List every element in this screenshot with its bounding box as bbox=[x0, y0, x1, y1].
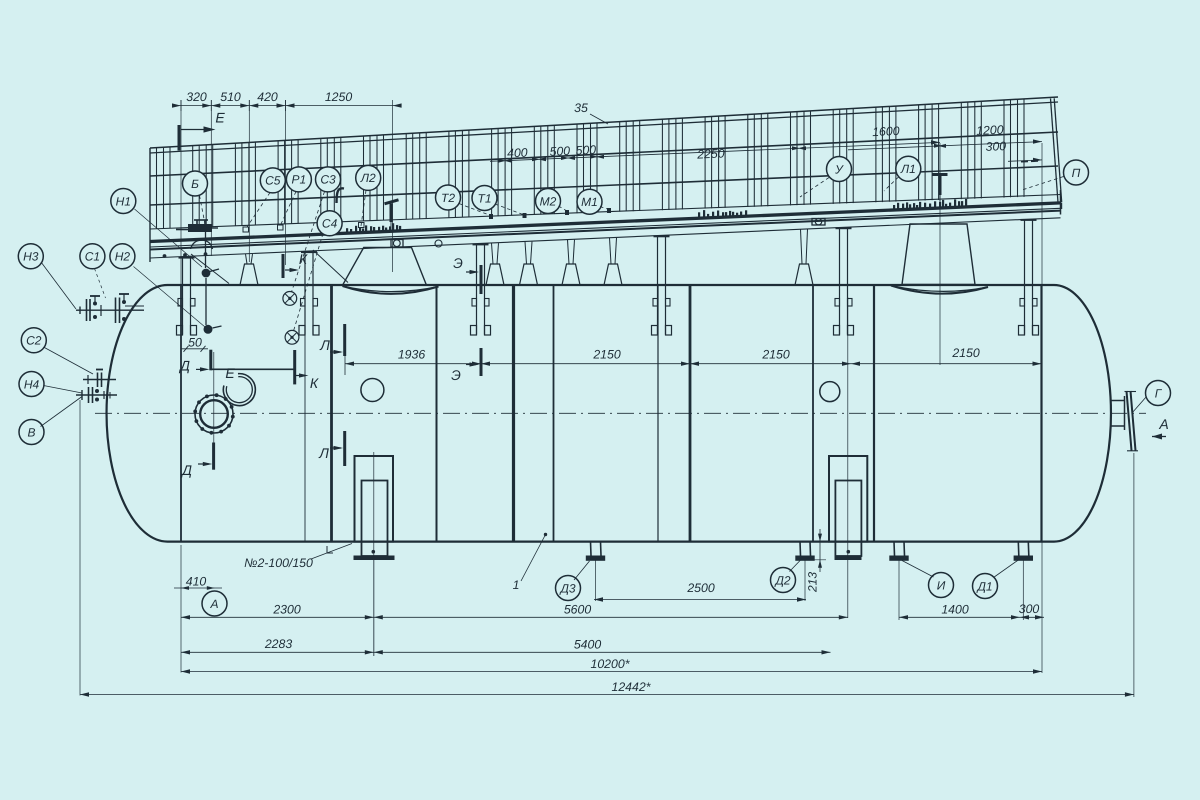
svg-text:50: 50 bbox=[188, 336, 202, 350]
svg-text:1400: 1400 bbox=[941, 603, 969, 617]
svg-text:К: К bbox=[299, 251, 308, 267]
svg-text:С4: С4 bbox=[322, 217, 338, 231]
svg-text:Д3: Д3 bbox=[558, 581, 575, 595]
svg-text:2150: 2150 bbox=[592, 348, 621, 362]
svg-text:Л: Л bbox=[319, 337, 330, 353]
svg-text:И: И bbox=[937, 578, 946, 592]
svg-text:12442*: 12442* bbox=[612, 680, 652, 694]
svg-text:С1: С1 bbox=[85, 250, 100, 264]
svg-text:Т1: Т1 bbox=[477, 191, 491, 205]
svg-text:Э: Э bbox=[453, 255, 463, 271]
svg-text:У: У bbox=[834, 162, 844, 176]
svg-text:Т2: Т2 bbox=[441, 191, 455, 205]
svg-text:420: 420 bbox=[257, 90, 278, 104]
svg-text:№2-100/150: №2-100/150 bbox=[244, 556, 313, 570]
svg-text:К: К bbox=[310, 375, 319, 391]
svg-text:Е: Е bbox=[215, 110, 225, 126]
svg-text:Л: Л bbox=[318, 445, 329, 461]
svg-text:1250: 1250 bbox=[325, 90, 353, 104]
svg-text:10200*: 10200* bbox=[591, 657, 631, 671]
svg-text:С3: С3 bbox=[320, 173, 336, 187]
svg-text:Д2: Д2 bbox=[773, 573, 790, 587]
svg-text:Р1: Р1 bbox=[292, 173, 307, 187]
svg-text:М2: М2 bbox=[540, 194, 557, 208]
svg-text:2150: 2150 bbox=[761, 348, 790, 362]
svg-text:Д: Д bbox=[178, 358, 190, 374]
svg-text:2250: 2250 bbox=[696, 146, 725, 161]
svg-text:А: А bbox=[209, 597, 218, 611]
svg-text:2300: 2300 bbox=[272, 603, 301, 617]
svg-text:Н3: Н3 bbox=[23, 250, 39, 264]
svg-text:Л1: Л1 bbox=[900, 162, 916, 176]
svg-text:320: 320 bbox=[186, 90, 207, 104]
svg-text:5600: 5600 bbox=[564, 603, 592, 617]
svg-text:500: 500 bbox=[549, 144, 570, 159]
svg-text:300: 300 bbox=[985, 139, 1006, 154]
svg-text:2283: 2283 bbox=[264, 637, 293, 651]
svg-text:А: А bbox=[1158, 416, 1168, 432]
svg-text:400: 400 bbox=[507, 146, 528, 161]
svg-text:Н4: Н4 bbox=[24, 377, 40, 391]
svg-text:35: 35 bbox=[574, 101, 588, 115]
svg-text:2500: 2500 bbox=[686, 581, 715, 595]
svg-text:В: В bbox=[27, 425, 35, 439]
svg-text:Л2: Л2 bbox=[360, 171, 376, 185]
svg-text:1936: 1936 bbox=[398, 348, 426, 362]
svg-text:Э: Э bbox=[451, 367, 461, 383]
svg-text:Н2: Н2 bbox=[115, 250, 131, 264]
svg-text:5400: 5400 bbox=[574, 638, 602, 652]
svg-text:300: 300 bbox=[1019, 602, 1040, 616]
svg-text:213: 213 bbox=[806, 572, 820, 593]
svg-text:1200: 1200 bbox=[976, 123, 1004, 138]
svg-text:510: 510 bbox=[220, 90, 241, 104]
svg-text:1: 1 bbox=[513, 578, 520, 592]
svg-text:Н1: Н1 bbox=[116, 194, 131, 208]
svg-text:2150: 2150 bbox=[951, 346, 980, 360]
svg-text:С2: С2 bbox=[26, 334, 42, 348]
svg-text:500: 500 bbox=[575, 143, 596, 158]
svg-text:Д1: Д1 bbox=[975, 579, 992, 593]
svg-text:П: П bbox=[1072, 166, 1081, 180]
svg-text:1600: 1600 bbox=[872, 124, 900, 139]
svg-text:С5: С5 bbox=[265, 174, 281, 188]
svg-text:Е: Е bbox=[225, 365, 235, 381]
svg-text:Д: Д bbox=[180, 462, 192, 478]
svg-text:М1: М1 bbox=[581, 195, 598, 209]
svg-text:Б: Б bbox=[191, 177, 199, 191]
